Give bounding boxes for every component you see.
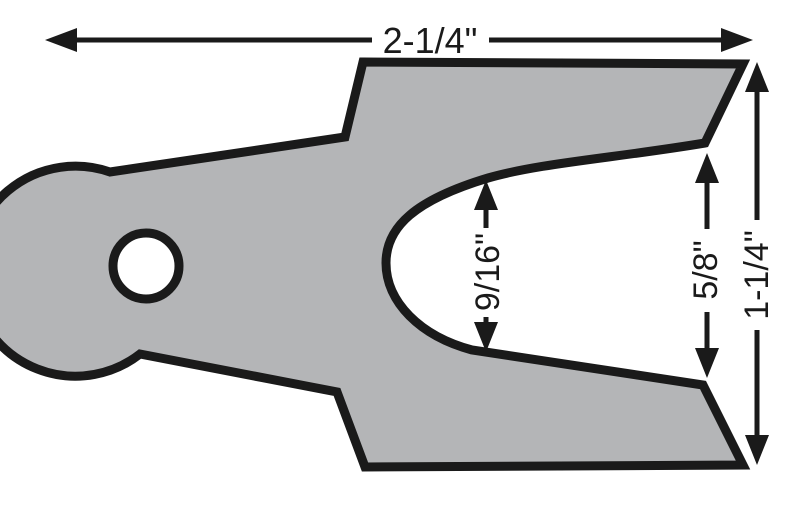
arrow-down-icon	[695, 348, 719, 378]
diagram-canvas: 2-1/4" 9/16" 5/8" 1-1/4"	[0, 0, 800, 505]
dimension-label-slot-opening-height: 5/8"	[687, 240, 725, 299]
mounting-hole	[113, 233, 179, 299]
arrow-down-icon	[745, 435, 769, 465]
dimension-slot-opening-height: 5/8"	[687, 153, 725, 378]
dimension-label-overall-height: 1-1/4"	[738, 230, 776, 320]
dimension-label-overall-width: 2-1/4"	[383, 20, 478, 61]
dimension-overall-width: 2-1/4"	[45, 20, 753, 61]
dimension-overall-height: 1-1/4"	[738, 62, 776, 465]
shim-diagram: 2-1/4" 9/16" 5/8" 1-1/4"	[0, 0, 800, 505]
arrow-up-icon	[745, 62, 769, 92]
arrow-right-icon	[721, 28, 753, 52]
dimension-slot-width: 9/16"	[469, 180, 507, 352]
dimension-label-slot-width: 9/16"	[469, 233, 507, 311]
arrow-left-icon	[45, 28, 77, 52]
arrow-up-icon	[695, 153, 719, 183]
